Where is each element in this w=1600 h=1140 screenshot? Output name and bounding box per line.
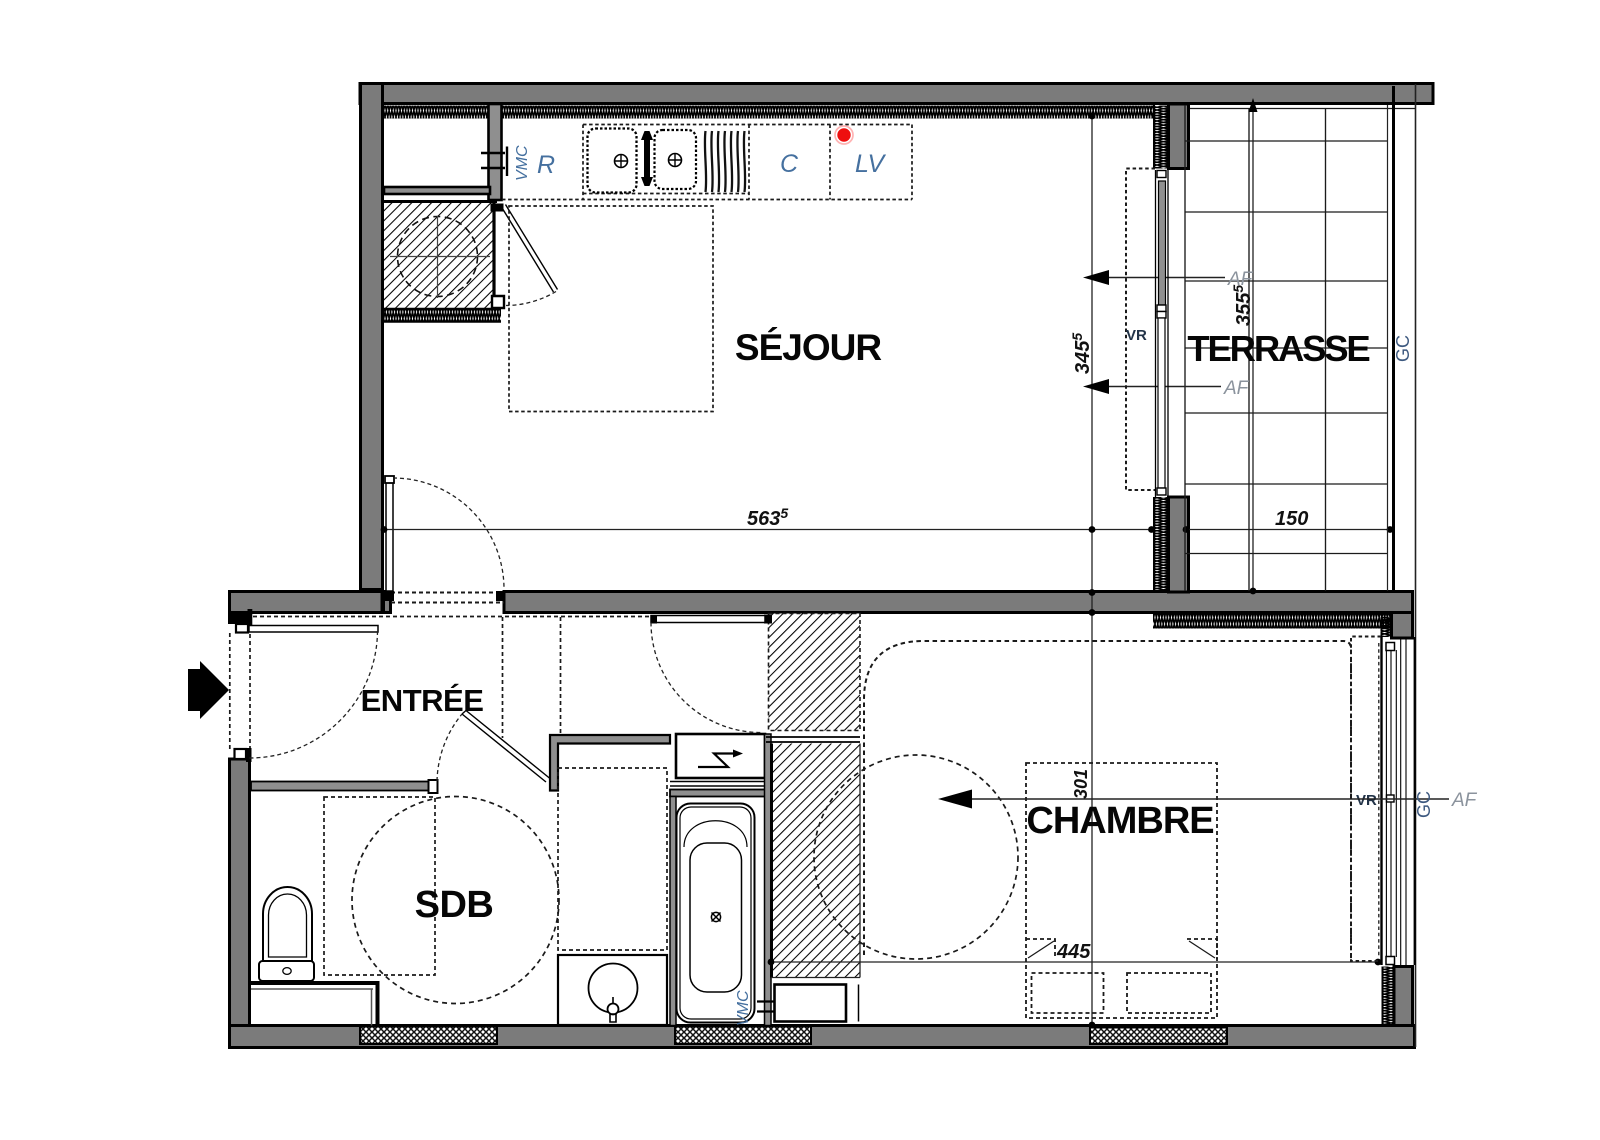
svg-text:445: 445 [1056, 941, 1091, 963]
svg-text:LV: LV [855, 150, 887, 178]
svg-text:150: 150 [1275, 508, 1308, 530]
svg-text:AF: AF [1223, 378, 1250, 399]
svg-text:VR: VR [1126, 327, 1147, 344]
svg-text:R: R [537, 151, 555, 179]
svg-text:VMC: VMC [735, 990, 752, 1026]
svg-text:AF: AF [1451, 790, 1478, 811]
svg-text:SÉJOUR: SÉJOUR [735, 327, 881, 368]
svg-text:GC: GC [1393, 335, 1413, 362]
svg-text:SDB: SDB [415, 884, 494, 926]
svg-text:TERRASSE: TERRASSE [1187, 328, 1369, 369]
svg-text:VR: VR [1356, 792, 1377, 809]
svg-text:ENTRÉE: ENTRÉE [361, 683, 484, 718]
svg-text:CHAMBRE: CHAMBRE [1026, 800, 1213, 842]
svg-text:C: C [780, 150, 799, 178]
svg-text:GC: GC [1414, 791, 1434, 818]
svg-text:VMC: VMC [514, 145, 531, 181]
svg-text:AF: AF [1227, 269, 1254, 290]
svg-text:301: 301 [1071, 769, 1091, 799]
